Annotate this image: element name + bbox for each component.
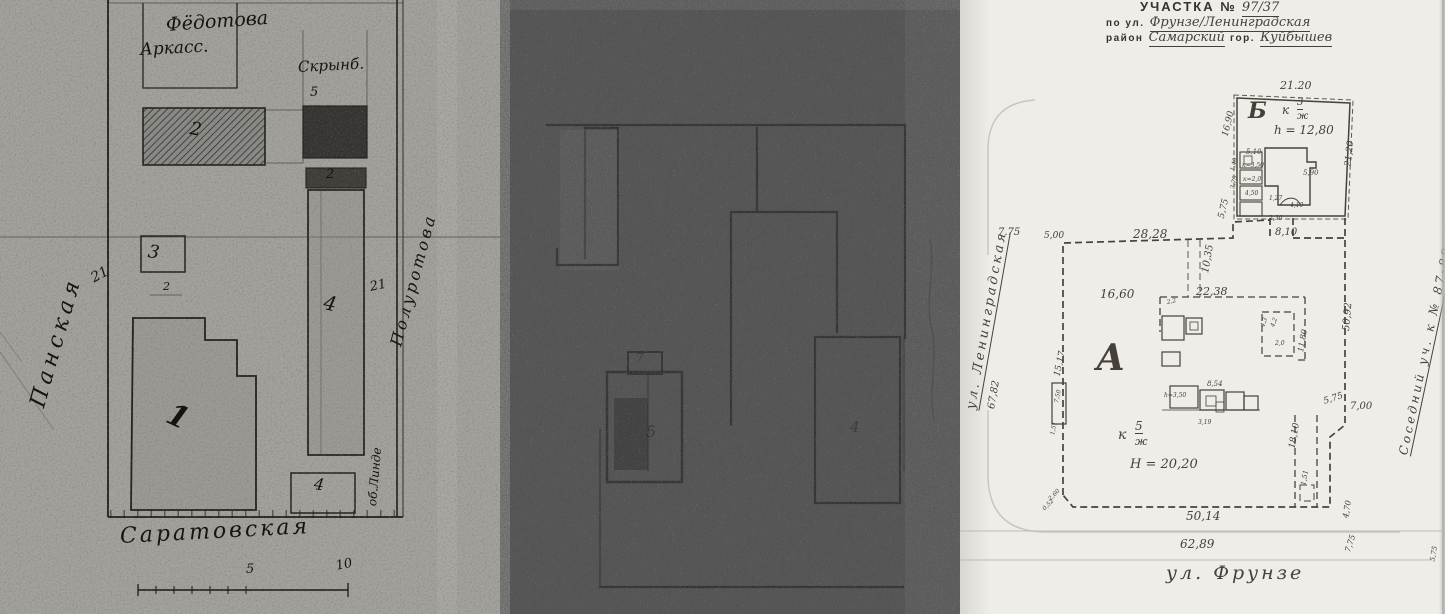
middle-plan-drawing [500, 0, 960, 614]
city-name: Куйбышев [1260, 30, 1332, 47]
district-name: Самарский [1149, 30, 1225, 47]
photocopy-grain-light [500, 0, 960, 614]
city-prefix: гор. [1230, 33, 1255, 44]
panel-right-survey-plan: УЧАСТКА № 97/37 по ул. Фрунзе/Ленинградс… [960, 0, 1445, 614]
panel-middle-dark-photocopy: 547 [500, 0, 960, 614]
right-plan-drawing [960, 0, 1445, 614]
plan-title-block: УЧАСТКА № 97/37 по ул. Фрунзе/Ленинградс… [1106, 0, 1356, 41]
panel-left-handwritten-plan: ФёдотоваАркасс.Скрынб.522421213214Панска… [0, 0, 500, 614]
left-plan-drawing [0, 0, 500, 614]
scanned-plans-triptych: ФёдотоваАркасс.Скрынб.522421213214Панска… [0, 0, 1445, 614]
film-grain [0, 0, 500, 614]
paper-grain [960, 0, 1445, 614]
district-prefix: район [1106, 33, 1143, 44]
